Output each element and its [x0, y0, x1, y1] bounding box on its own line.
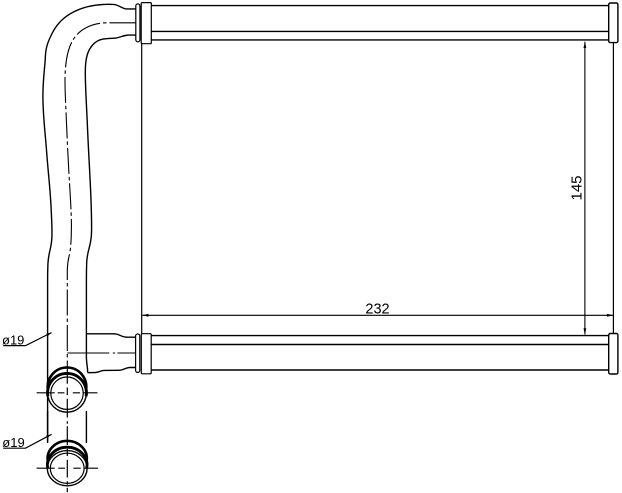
svg-text:145: 145: [569, 175, 586, 200]
svg-text:ø19: ø19: [2, 332, 24, 347]
svg-text:ø19: ø19: [2, 435, 24, 450]
svg-text:232: 232: [365, 302, 389, 318]
